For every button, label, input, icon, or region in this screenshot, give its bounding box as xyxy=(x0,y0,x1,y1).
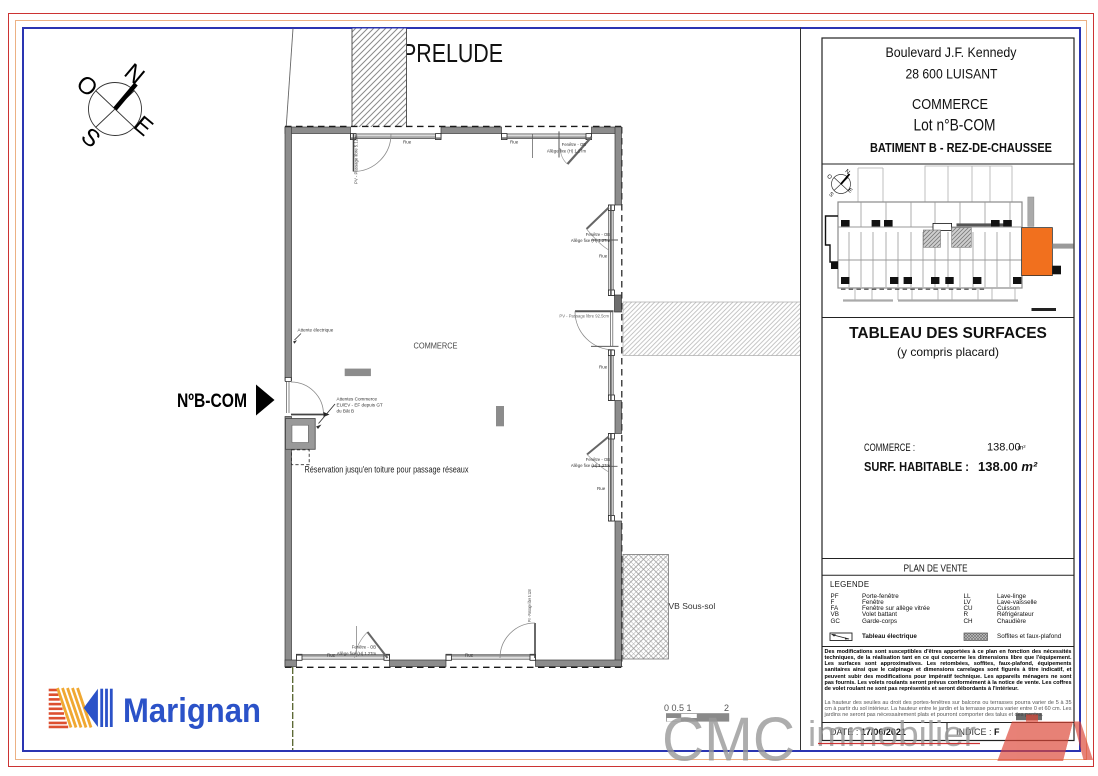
svg-text:0 0.5 1: 0 0.5 1 xyxy=(664,703,692,713)
svg-text:Fenêtre - OB: Fenêtre - OB xyxy=(586,232,610,237)
svg-text:Rue: Rue xyxy=(465,653,474,658)
svg-text:S: S xyxy=(76,123,106,154)
svg-text:BATIMENT B - REZ-DE-CHAUSSEE: BATIMENT B - REZ-DE-CHAUSSEE xyxy=(870,141,1052,155)
svg-text:138.00 m²: 138.00 m² xyxy=(978,459,1038,474)
svg-text:Allège fixe (H) 1.27m: Allège fixe (H) 1.27m xyxy=(571,463,611,468)
svg-text:Attente électrique: Attente électrique xyxy=(298,328,334,333)
svg-text:Attentes Commerce: Attentes Commerce xyxy=(337,397,378,402)
svg-text:2: 2 xyxy=(724,703,729,713)
svg-text:Rue: Rue xyxy=(403,140,412,145)
svg-text:Rue: Rue xyxy=(510,140,519,145)
svg-text:PV - Passage libre 92.5cm: PV - Passage libre 92.5cm xyxy=(559,314,609,319)
svg-text:Rue: Rue xyxy=(327,653,336,658)
svg-text:E: E xyxy=(128,111,158,142)
svg-text:Allège fixe (H) 1.27m: Allège fixe (H) 1.27m xyxy=(337,651,377,656)
svg-text:Rue: Rue xyxy=(597,486,606,491)
svg-text:VB Sous-sol: VB Sous-sol xyxy=(669,601,716,611)
svg-text:Fenêtre - OB: Fenêtre - OB xyxy=(586,457,610,462)
svg-text:Boulevard J.F. Kennedy: Boulevard J.F. Kennedy xyxy=(886,45,1017,60)
svg-text:O: O xyxy=(71,70,103,103)
svg-text:PV - Passage libre 5.12m: PV - Passage libre 5.12m xyxy=(527,589,532,622)
svg-text:138.00: 138.00 xyxy=(987,442,1021,454)
svg-text:PRELUDE: PRELUDE xyxy=(402,38,503,68)
svg-text:EU/EV - EF depuis GT: EU/EV - EF depuis GT xyxy=(337,403,383,408)
svg-text:du Bât B: du Bât B xyxy=(337,409,355,414)
svg-text:28 600 LUISANT: 28 600 LUISANT xyxy=(906,66,998,81)
svg-text:Allège fixe (H) 1.27m: Allège fixe (H) 1.27m xyxy=(571,238,611,243)
svg-text:Fenêtre - OB: Fenêtre - OB xyxy=(352,645,376,650)
svg-text:SURF. HABITABLE :: SURF. HABITABLE : xyxy=(864,460,969,474)
svg-text:Marignan: Marignan xyxy=(123,692,261,730)
svg-text:Allège fixe (H) 1.27m: Allège fixe (H) 1.27m xyxy=(547,149,587,154)
svg-text:Lot n°B-COM: Lot n°B-COM xyxy=(914,117,996,135)
svg-text:Réservation jusqu'en toiture p: Réservation jusqu'en toiture pour passag… xyxy=(305,465,469,476)
svg-text:COMMERCE: COMMERCE xyxy=(414,342,458,351)
svg-text:Rue: Rue xyxy=(599,365,608,370)
svg-text:N: N xyxy=(119,58,150,90)
svg-text:m²: m² xyxy=(1018,445,1026,452)
svg-text:Rue: Rue xyxy=(599,254,608,259)
svg-text:Fenêtre - OB: Fenêtre - OB xyxy=(562,142,586,147)
svg-text:NºB-COM: NºB-COM xyxy=(177,391,247,412)
svg-text:PV - Passage libre 5.12m: PV - Passage libre 5.12m xyxy=(354,135,359,184)
svg-text:COMMERCE :: COMMERCE : xyxy=(864,442,915,454)
svg-text:COMMERCE: COMMERCE xyxy=(912,96,988,113)
svg-text:PLAN DE VENTE: PLAN DE VENTE xyxy=(904,564,968,575)
